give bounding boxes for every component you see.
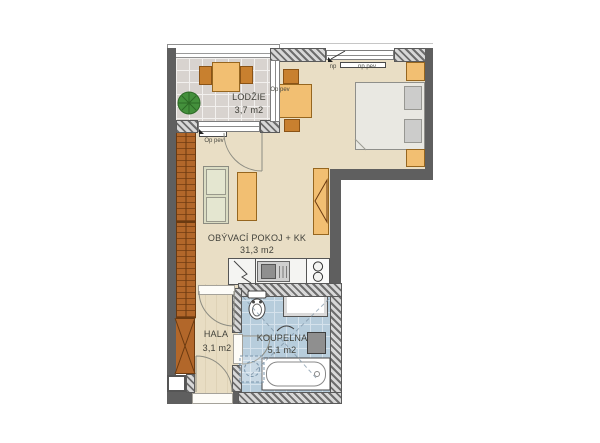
label-hall-name: HALA: [204, 329, 228, 339]
label-living-name: OBÝVACÍ POKOJ + KK: [208, 233, 306, 243]
fridge-icon: [234, 261, 251, 283]
label-op-pev-window: Op pev: [204, 138, 223, 144]
vent-arc-mark: [277, 326, 294, 331]
label-bath-name: KOUPELNA: [257, 333, 308, 343]
plant-icon: [178, 92, 200, 114]
bathtub-icon: [262, 358, 330, 390]
label-op-pev-table: Op pev: [270, 87, 289, 93]
sink-drainer-lines: [280, 266, 287, 278]
label-bath-area: 5,1 m2: [268, 345, 297, 355]
label-np-pev: np pev: [358, 64, 376, 70]
label-living-area: 31,3 m2: [240, 245, 274, 255]
stove-burners: [313, 262, 322, 282]
shower-drain-icon: [240, 356, 264, 382]
door-arc-entrance: [196, 356, 232, 392]
closet-cross-lines: [175, 318, 195, 374]
door-arc-hall: [199, 291, 234, 326]
window-opening-marks: [199, 57, 333, 134]
tv-icon: [315, 180, 327, 222]
label-loggia-name: LODŽIE: [232, 92, 266, 102]
label-hall-area: 3,1 m2: [203, 343, 232, 353]
door-arc-balcony: [224, 133, 262, 171]
plan-detail-overlay: [0, 0, 600, 443]
label-np: np: [330, 64, 337, 70]
floor-plan: LODŽIE 3,7 m2 OBÝVACÍ POKOJ + KK 31,3 m2…: [0, 0, 600, 443]
label-loggia-area: 3,7 m2: [235, 105, 264, 115]
bed-fold-line: [355, 139, 366, 150]
toilet-icon: [248, 291, 266, 319]
window-opening-line: [331, 51, 345, 59]
